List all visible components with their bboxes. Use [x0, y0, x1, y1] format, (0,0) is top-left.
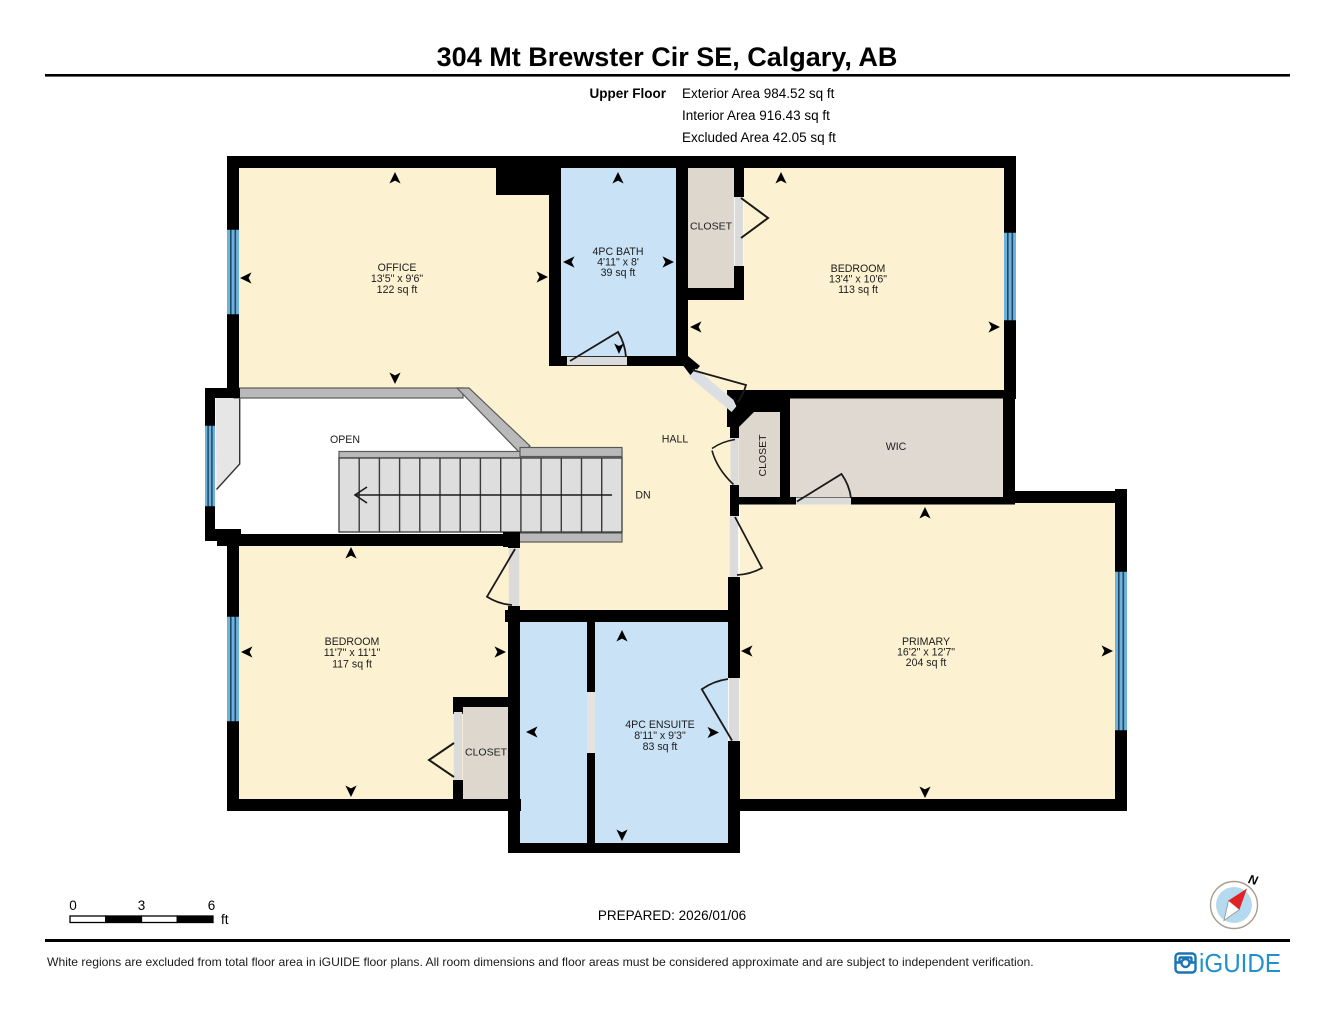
svg-text:113 sq ft: 113 sq ft	[838, 284, 878, 296]
svg-text:CLOSET: CLOSET	[757, 434, 769, 477]
svg-text:11'7" x 11'1": 11'7" x 11'1"	[324, 647, 381, 659]
svg-text:ft: ft	[221, 912, 229, 927]
svg-text:Exterior Area 984.52 sq ft: Exterior Area 984.52 sq ft	[682, 86, 835, 101]
svg-text:83 sq ft: 83 sq ft	[643, 741, 678, 753]
svg-text:OPEN: OPEN	[330, 434, 360, 446]
svg-text:3: 3	[138, 898, 146, 913]
svg-text:39 sq ft: 39 sq ft	[601, 267, 636, 279]
svg-text:304 Mt Brewster Cir SE, Calgar: 304 Mt Brewster Cir SE, Calgary, AB	[437, 42, 898, 72]
svg-text:DN: DN	[635, 490, 650, 502]
svg-text:CLOSET: CLOSET	[465, 747, 508, 759]
svg-text:Upper Floor: Upper Floor	[590, 86, 667, 101]
svg-text:PREPARED: 2026/01/06: PREPARED: 2026/01/06	[598, 908, 746, 923]
svg-text:122 sq ft: 122 sq ft	[377, 284, 418, 296]
svg-text:6: 6	[208, 898, 216, 913]
svg-text:0: 0	[69, 898, 77, 913]
svg-text:White regions are excluded fro: White regions are excluded from total fl…	[47, 955, 1034, 969]
svg-text:Interior Area 916.43 sq ft: Interior Area 916.43 sq ft	[682, 108, 830, 123]
svg-text:Excluded Area 42.05 sq ft: Excluded Area 42.05 sq ft	[682, 130, 836, 145]
svg-text:117 sq ft: 117 sq ft	[332, 659, 372, 671]
svg-text:204 sq ft: 204 sq ft	[906, 657, 947, 669]
svg-text:WIC: WIC	[886, 441, 907, 453]
svg-text:CLOSET: CLOSET	[690, 221, 733, 233]
svg-text:HALL: HALL	[662, 434, 689, 446]
svg-text:iGUIDE: iGUIDE	[1199, 948, 1281, 978]
